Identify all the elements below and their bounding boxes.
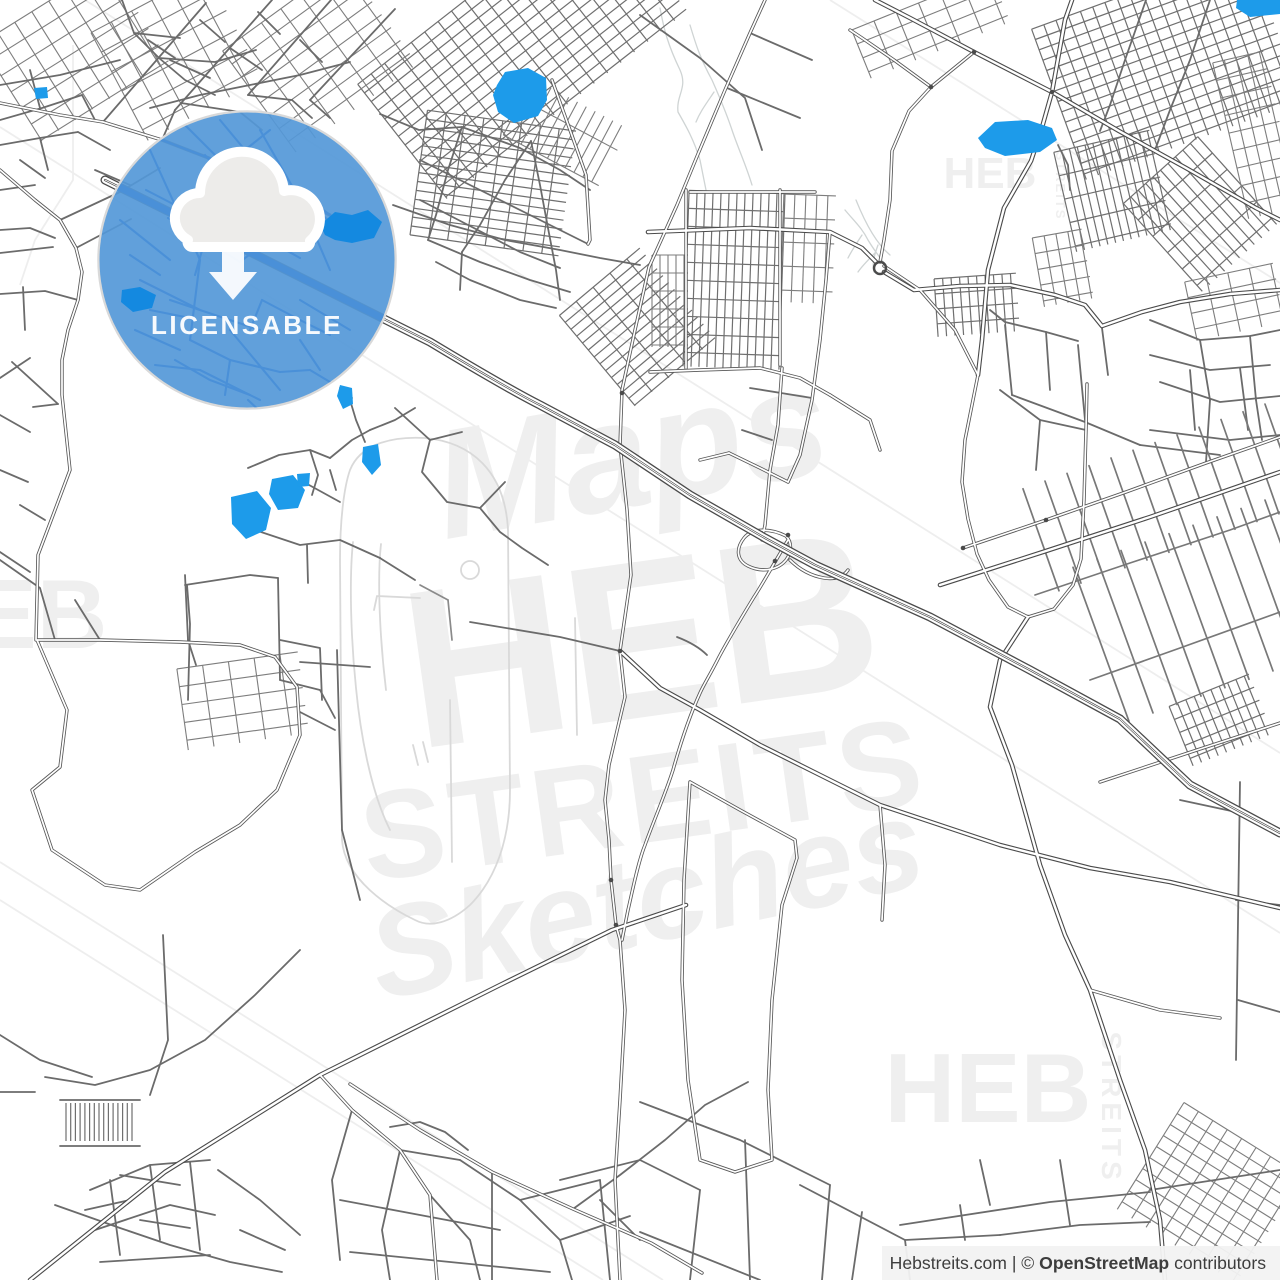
svg-text:HEB: HEB	[885, 1033, 1092, 1143]
svg-text:HEB: HEB	[0, 559, 107, 669]
svg-text:Hebstreits.com | © OpenStreetM: Hebstreits.com | © OpenStreetMap contrib…	[890, 1253, 1267, 1273]
svg-text:LICENSABLE: LICENSABLE	[151, 310, 343, 340]
